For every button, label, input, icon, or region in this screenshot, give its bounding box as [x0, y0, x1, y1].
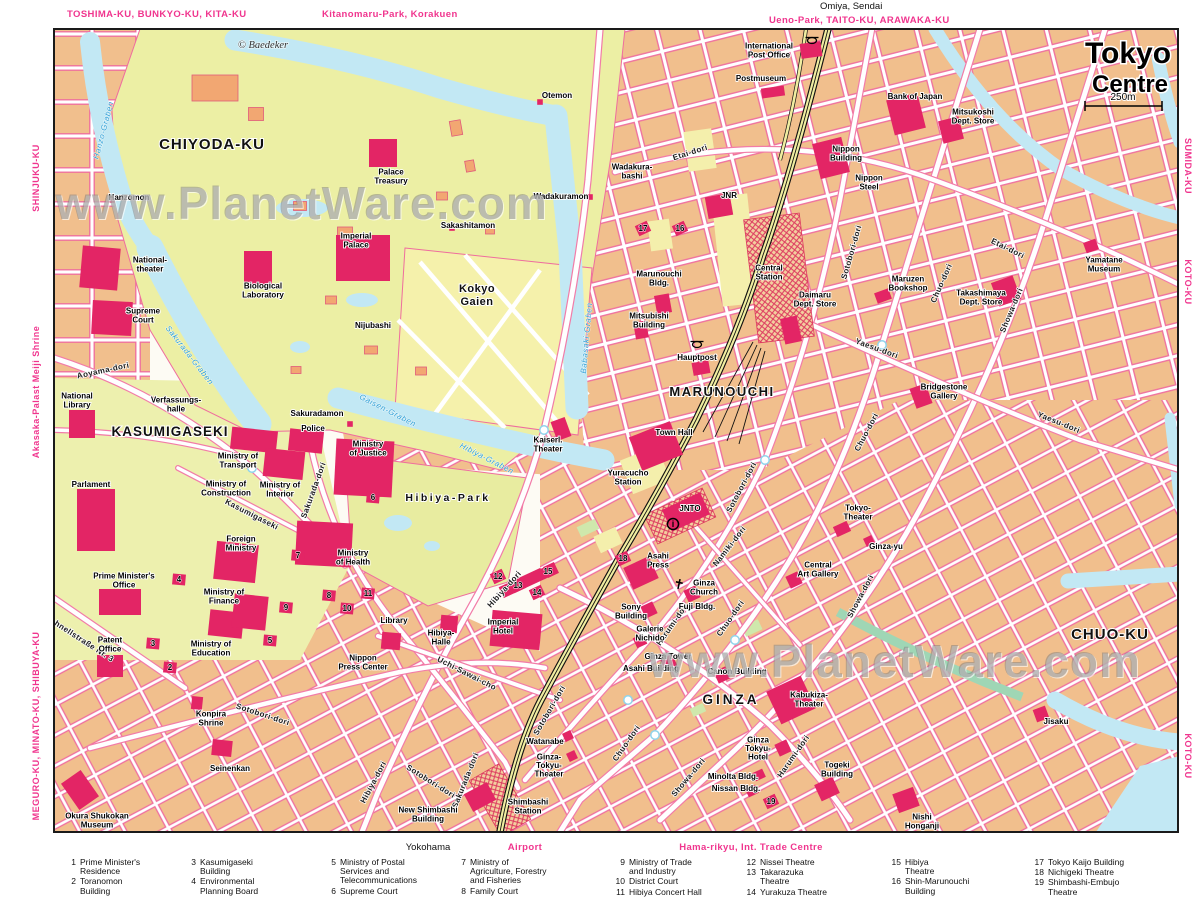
legend-item: 2Toranomon Building: [62, 877, 140, 895]
legend-item: 14Yurakuza Theatre: [742, 888, 827, 897]
legend-item-name: Hibiya Concert Hall: [629, 888, 702, 897]
legend-item-name: Takarazuka Theatre: [760, 868, 803, 886]
legend-column: 17Tokyo Kaijo Building18Nichigeki Theatr…: [1030, 858, 1124, 898]
district-label: KASUMIGASEKI: [111, 424, 228, 439]
landmark-label: Ministry ofEducation: [191, 640, 232, 658]
landmark-building: [263, 448, 306, 480]
landmark-label: Ministry ofFinance: [204, 588, 245, 606]
legend-column: 3Kasumigaseki Building4Environmental Pla…: [182, 858, 258, 897]
landmark-building: [77, 489, 115, 551]
legend-item-number: 15: [887, 858, 901, 876]
landmark-label: Ministryof Health: [336, 549, 370, 567]
legend-item-name: Family Court: [470, 887, 518, 896]
legend-item-number: 13: [742, 868, 756, 886]
landmark-label: GinzaChurch: [690, 579, 718, 597]
landmark-label: CentralStation: [755, 264, 783, 282]
landmark-building: [381, 632, 401, 651]
landmark-label: Library: [380, 616, 408, 625]
landmark-label: MitsubishiBuilding: [629, 312, 669, 330]
landmark-label: AsahiPress: [647, 552, 669, 570]
landmark-label: NationalLibrary: [61, 392, 93, 410]
map-legend: 1Prime Minister's Residence2Toranomon Bu…: [54, 858, 1178, 902]
legend-item-number: 8: [452, 887, 466, 896]
legend-item-name: Ministry of Postal Services and Telecomm…: [340, 858, 417, 886]
landmark-label: Ginza-yu: [869, 542, 903, 551]
minor-building: [249, 108, 264, 121]
legend-item: 10District Court: [611, 877, 702, 886]
numbered-marker: 17: [639, 224, 648, 233]
edge-label-akasaka: Akasaka-Palast Meiji Shrine: [31, 326, 41, 459]
legend-column: 5Ministry of Postal Services and Telecom…: [322, 858, 417, 897]
map-title: Tokyo: [1085, 37, 1171, 70]
numbered-building: [39, 586, 53, 598]
legend-item-number: 1: [62, 858, 76, 876]
district-label: CHUO-KU: [1071, 626, 1149, 643]
legend-item: 11Hibiya Concert Hall: [611, 888, 702, 897]
landmark-label: GalerieNichido: [635, 625, 664, 643]
landmark-label: Hauptpost: [677, 353, 717, 362]
landmark-label: MaruzenBookshop: [888, 275, 927, 293]
numbered-marker: 8: [327, 591, 332, 600]
legend-item: 5Ministry of Postal Services and Telecom…: [322, 858, 417, 886]
legend-item: 3Kasumigaseki Building: [182, 858, 258, 876]
landmark-label: PatentOffice: [98, 636, 123, 654]
district-label: GINZA: [703, 692, 760, 707]
landmark-label: Ministry ofConstruction: [201, 480, 251, 498]
minor-building: [416, 367, 427, 375]
svg-text:i: i: [672, 519, 675, 529]
landmark-label: TogekiBuilding: [821, 761, 853, 779]
legend-item-number: 19: [1030, 878, 1044, 896]
legend-item-name: Supreme Court: [340, 887, 398, 896]
legend-item: 18Nichigeki Theatre: [1030, 868, 1124, 877]
landmark-label: Asahi Building: [623, 664, 679, 673]
landmark-label: Canon Building: [707, 667, 766, 676]
minor-building: [291, 367, 301, 374]
legend-item-name: Toranomon Building: [80, 877, 123, 895]
numbered-marker: 2: [168, 663, 173, 672]
legend-item-number: 10: [611, 877, 625, 886]
landmark-label: Nijubashi: [355, 321, 391, 330]
district-label: Kokyo: [459, 283, 495, 295]
top-label-toshima: TOSHIMA-KU, BUNKYO-KU, KITA-KU: [67, 9, 246, 20]
landmark-label: Ginza-Tokyu-Theater: [535, 752, 564, 778]
top-label-ueno: Ueno-Park, TAITO-KU, ARAWAKA-KU: [769, 15, 950, 26]
landmark-label: Wadakuramon: [534, 192, 589, 201]
numbered-marker: 14: [533, 588, 542, 597]
edge-label-koto-2: KOTO-KU: [1183, 733, 1193, 778]
landmark-label: NipponBuilding: [830, 145, 862, 163]
numbered-marker: 16: [676, 224, 685, 233]
numbered-marker: 11: [364, 589, 373, 598]
edge-label-koto-1: KOTO-KU: [1183, 259, 1193, 304]
landmark-label: JNTO: [679, 504, 700, 513]
bottom-label-hamarikyu: Hama-rikyu, Int. Trade Centre: [628, 842, 874, 853]
numbered-marker: 15: [544, 567, 553, 576]
edge-label-sumida: SUMIDA-KU: [1183, 138, 1193, 194]
legend-item-number: 3: [182, 858, 196, 876]
minor-building: [192, 75, 238, 101]
landmark-label: DaimaruDept. Store: [794, 291, 837, 309]
legend-item: 16Shin-Marunouchi Building: [887, 877, 969, 895]
copyright: © Baedeker: [238, 40, 289, 51]
landmark-label: Hanzomon: [109, 193, 150, 202]
landmark-label: GinzaTokyu-Hotel: [745, 735, 771, 761]
legend-item: 15Hibiya Theatre: [887, 858, 969, 876]
landmark-label: ForeignMinistry: [226, 535, 257, 553]
numbered-marker: 10: [343, 604, 352, 613]
landmark-label: Sakashitamon: [441, 221, 495, 230]
legend-item-name: Shin-Marunouchi Building: [905, 877, 969, 895]
roundabout: [540, 426, 548, 434]
pond: [290, 341, 310, 353]
roundabout: [731, 636, 739, 644]
district-label: Gaien: [460, 296, 493, 308]
minor-building: [326, 296, 337, 304]
scale-label: 250m: [1110, 92, 1135, 103]
numbered-marker: 12: [494, 572, 503, 581]
landmark-label: Tokyo-Theater: [844, 504, 873, 522]
landmark-label: TakashimayaDept. Store: [956, 289, 1006, 307]
district-label: MARUNOUCHI: [669, 384, 774, 399]
landmark-building: [91, 300, 133, 336]
roundabout: [651, 731, 659, 739]
landmark-label: Police: [301, 424, 325, 433]
numbered-marker: 4: [177, 575, 182, 584]
legend-item: 8Family Court: [452, 887, 547, 896]
minor-building: [437, 192, 448, 200]
landmark-label: National-theater: [133, 256, 168, 274]
legend-item: 9Ministry of Trade and Industry: [611, 858, 702, 876]
legend-item-number: 17: [1030, 858, 1044, 867]
edge-label-meguro: MEGURO-KU, MINATO-KU, SHIBUYA-KU: [31, 632, 41, 821]
landmark-label: Sakuradamon: [291, 409, 344, 418]
numbered-marker: 5: [268, 636, 273, 645]
landmark-building: [244, 251, 272, 285]
legend-column: 12Nissei Theatre13Takarazuka Theatre14Yu…: [742, 858, 827, 898]
legend-column: 1Prime Minister's Residence2Toranomon Bu…: [62, 858, 140, 897]
legend-item-number: 5: [322, 858, 336, 886]
landmark-label: Seinenkan: [210, 764, 250, 773]
legend-item: 7Ministry of Agriculture, Forestry and F…: [452, 858, 547, 886]
legend-item-name: Environmental Planning Board: [200, 877, 258, 895]
legend-item-number: 11: [611, 888, 625, 897]
legend-item-name: Yurakuza Theatre: [760, 888, 827, 897]
landmark-label: JNR: [721, 191, 737, 200]
pond: [384, 515, 412, 531]
legend-item-number: 4: [182, 877, 196, 895]
numbered-marker: 6: [371, 493, 376, 502]
legend-item-name: District Court: [629, 877, 678, 886]
legend-item-name: Prime Minister's Residence: [80, 858, 140, 876]
legend-item-number: 12: [742, 858, 756, 867]
legend-item-name: Nissei Theatre: [760, 858, 815, 867]
bottom-label-airport: Airport: [483, 842, 567, 853]
legend-item-number: 6: [322, 887, 336, 896]
legend-item-number: 18: [1030, 868, 1044, 877]
landmark-label: Minolta Bldg.: [708, 772, 758, 781]
plaza-block: [647, 219, 673, 252]
minor-building: [449, 120, 462, 137]
landmark-label: BiologicalLaboratory: [242, 282, 284, 300]
landmark-label: Bank of Japan: [888, 92, 943, 101]
legend-item-name: Kasumigaseki Building: [200, 858, 253, 876]
legend-item: 19Shimbashi-Embujo Theatre: [1030, 878, 1124, 896]
landmark-label: Parlament: [72, 480, 111, 489]
legend-item: 1Prime Minister's Residence: [62, 858, 140, 876]
top-label-kitanomaru: Kitanomaru-Park, Korakuen: [322, 9, 458, 20]
landmark-building: [191, 696, 203, 710]
tokyo-map-page: i12345678910111213141516171819Aoyama-dor…: [0, 0, 1200, 904]
roundabout: [624, 696, 632, 704]
legend-item-number: 2: [62, 877, 76, 895]
landmark-label: Fuji Bldg.: [679, 602, 715, 611]
legend-column: 15Hibiya Theatre16Shin-Marunouchi Buildi…: [887, 858, 969, 897]
landmark-label: Postmuseum: [736, 74, 786, 83]
legend-item-name: Ministry of Trade and Industry: [629, 858, 692, 876]
landmark-label: PalaceTreasury: [374, 168, 408, 186]
legend-item-number: 9: [611, 858, 625, 876]
landmark-building: [69, 410, 95, 438]
bottom-label-yokohama: Yokohama: [378, 842, 478, 853]
moat-water: [1068, 574, 1180, 581]
landmark-label: Kaiserl.Theater: [534, 436, 563, 454]
minor-building: [294, 202, 307, 211]
legend-item-number: 7: [452, 858, 466, 886]
legend-item-number: 16: [887, 877, 901, 895]
landmark-building: [369, 139, 397, 167]
edge-label-shinjuku: SHINJUKU-KU: [31, 144, 41, 212]
map-canvas: i12345678910111213141516171819Aoyama-dor…: [0, 0, 1200, 904]
landmark-building: [79, 245, 121, 290]
legend-item: 12Nissei Theatre: [742, 858, 827, 867]
minor-building: [365, 346, 378, 354]
gate-marker: [537, 99, 543, 105]
legend-item: 17Tokyo Kaijo Building: [1030, 858, 1124, 867]
numbered-marker: 19: [767, 797, 776, 806]
numbered-marker: 9: [284, 603, 289, 612]
legend-item-name: Tokyo Kaijo Building: [1048, 858, 1124, 867]
legend-item: 13Takarazuka Theatre: [742, 868, 827, 886]
district-label: Hibiya-Park: [405, 492, 490, 504]
pond: [346, 293, 378, 307]
numbered-marker: 1: [44, 588, 49, 597]
landmark-label: Nissan Bldg.: [712, 784, 760, 793]
landmark-label: Town Hall: [655, 428, 692, 437]
numbered-marker: 18: [619, 554, 628, 563]
legend-column: 7Ministry of Agriculture, Forestry and F…: [452, 858, 547, 897]
pond: [424, 541, 440, 551]
landmark-label: Jisaku: [1044, 717, 1069, 726]
landmark-label: Ginza Tower: [645, 652, 692, 661]
roundabout: [761, 456, 769, 464]
landmark-label: InternationalPost Office: [745, 42, 793, 60]
landmark-label: Ministry ofTransport: [218, 452, 259, 470]
legend-item-name: Shimbashi-Embujo Theatre: [1048, 878, 1119, 896]
district-label: CHIYODA-KU: [159, 136, 265, 153]
gate-marker: [347, 421, 353, 427]
landmark-label: Ministryof Justice: [349, 440, 387, 458]
landmark-label: KonpiraShrine: [196, 710, 227, 728]
landmark-label: Kabukiza-Theater: [790, 691, 828, 709]
legend-item-number: 14: [742, 888, 756, 897]
top-label-omiya: Omiya, Sendai: [820, 1, 882, 12]
legend-item-name: Ministry of Agriculture, Forestry and Fi…: [470, 858, 547, 886]
landmark-label: Watanabe: [526, 737, 564, 746]
minor-building: [465, 160, 476, 172]
numbered-marker: 3: [151, 639, 156, 648]
landmark-label: MitsukoshiDept. Store: [952, 108, 995, 126]
legend-column: 9Ministry of Trade and Industry10Distric…: [611, 858, 702, 898]
legend-item: 4Environmental Planning Board: [182, 877, 258, 895]
legend-item-name: Hibiya Theatre: [905, 858, 934, 876]
landmark-label: Otemon: [542, 91, 572, 100]
landmark-label: YamataneMuseum: [1085, 256, 1123, 274]
landmark-building: [99, 589, 141, 615]
landmark-building: [211, 739, 233, 757]
landmark-label: ImperialPalace: [341, 232, 372, 250]
numbered-marker: 7: [296, 551, 301, 560]
legend-item-name: Nichigeki Theatre: [1048, 868, 1114, 877]
legend-item: 6Supreme Court: [322, 887, 417, 896]
